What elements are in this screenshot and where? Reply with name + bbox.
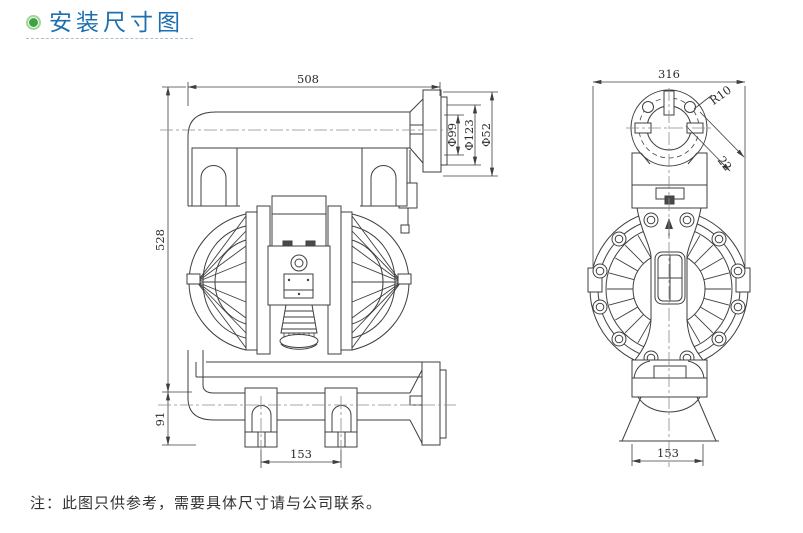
- bottom-manifold: [188, 350, 410, 420]
- product-dimension-page: 安装尺寸图: [0, 0, 803, 533]
- side-nameplate: [655, 252, 685, 304]
- installation-drawing: 508 528 91 153: [0, 0, 803, 533]
- dim-base-height: 91: [153, 392, 196, 445]
- center-body: [268, 196, 330, 305]
- dim-label-528: 528: [153, 229, 167, 251]
- dim-label-phi99: Φ99: [445, 123, 459, 147]
- mounting-feet: [245, 388, 357, 447]
- lifting-eye: [291, 255, 307, 271]
- dim-label-22: 22: [715, 153, 735, 173]
- reference-note: 注：此图只供参考，需要具体尺寸请与公司联系。: [30, 492, 382, 513]
- dim-label-91: 91: [153, 412, 167, 427]
- dim-base-width-side: 153: [632, 444, 703, 466]
- front-nameplate: [284, 274, 313, 298]
- front-view: [187, 90, 447, 447]
- lower-body: [196, 362, 434, 377]
- left-diaphragm-chamber: [187, 206, 270, 354]
- dim-overall-height: 528: [153, 87, 192, 392]
- dim-label-153-side: 153: [657, 446, 679, 460]
- suction-flange: [410, 362, 446, 445]
- muffler: [280, 305, 318, 349]
- side-lower-housing: [632, 360, 707, 412]
- dim-label-508: 508: [297, 72, 319, 86]
- dim-label-316: 316: [658, 67, 680, 81]
- dim-foot-spacing-front: 153: [261, 447, 341, 468]
- dim-corner-radius: R10: [694, 83, 734, 109]
- dim-overall-width: 508: [188, 72, 440, 106]
- right-diaphragm-chamber: [328, 206, 411, 354]
- dim-label-phi52: Φ52: [479, 123, 493, 147]
- dim-label-phi123: Φ123: [462, 119, 476, 150]
- dim-label-r10: R10: [707, 83, 734, 108]
- dim-label-153-front: 153: [290, 447, 312, 461]
